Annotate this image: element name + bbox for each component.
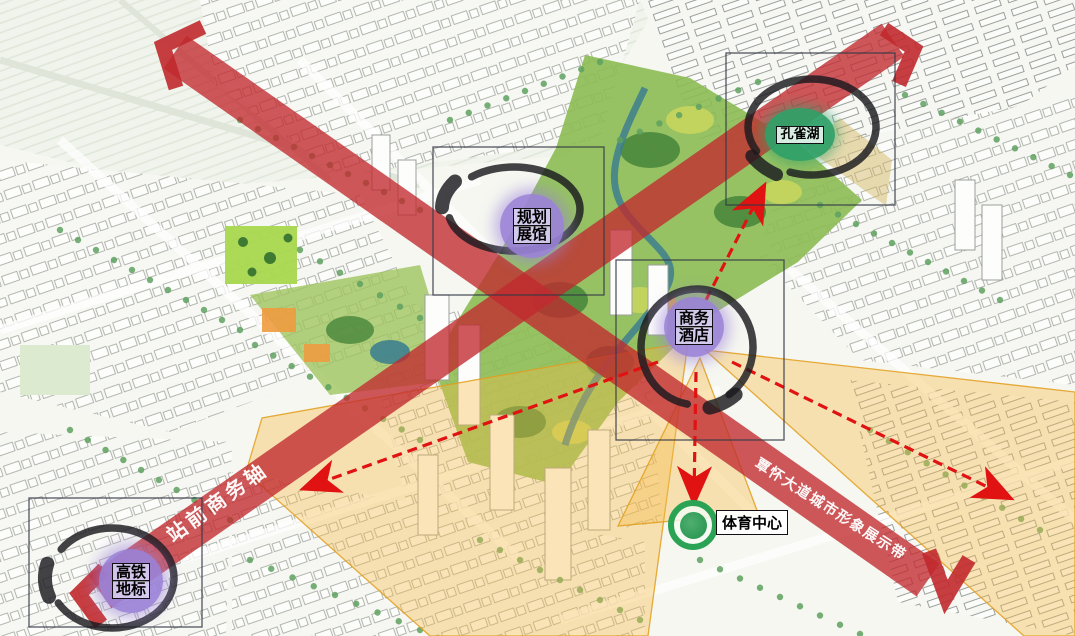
node-label-business-hotel-2: 酒店 xyxy=(675,326,713,345)
node-sports-center-ring xyxy=(668,500,718,550)
node-label-hsr-landmark-2: 地标 xyxy=(112,580,150,599)
node-label-sports-center: 体育中心 xyxy=(716,510,788,535)
analysis-layer: 站前商务轴 覃怀大道城市形象展示带 xyxy=(0,0,1075,636)
node-planning-hall: 规划 展馆 xyxy=(500,194,564,258)
planning-map: 站前商务轴 覃怀大道城市形象展示带 孔雀湖 规划 展馆 xyxy=(0,0,1075,636)
node-hsr-landmark: 高铁 地标 xyxy=(99,549,163,613)
node-label-peacock-lake: 孔雀湖 xyxy=(776,126,823,144)
node-label-business-hotel-1: 商务 xyxy=(675,309,713,328)
node-business-hotel: 商务 酒店 xyxy=(664,297,724,357)
sports-center-disc xyxy=(680,512,707,539)
sightline-north xyxy=(706,190,762,300)
view-cone-east xyxy=(705,350,1075,636)
node-label-planning-hall-2: 展馆 xyxy=(513,225,551,244)
node-label-hsr-landmark-1: 高铁 xyxy=(112,563,150,582)
node-label-planning-hall-1: 规划 xyxy=(513,208,551,227)
node-peacock-lake: 孔雀湖 xyxy=(765,108,835,161)
